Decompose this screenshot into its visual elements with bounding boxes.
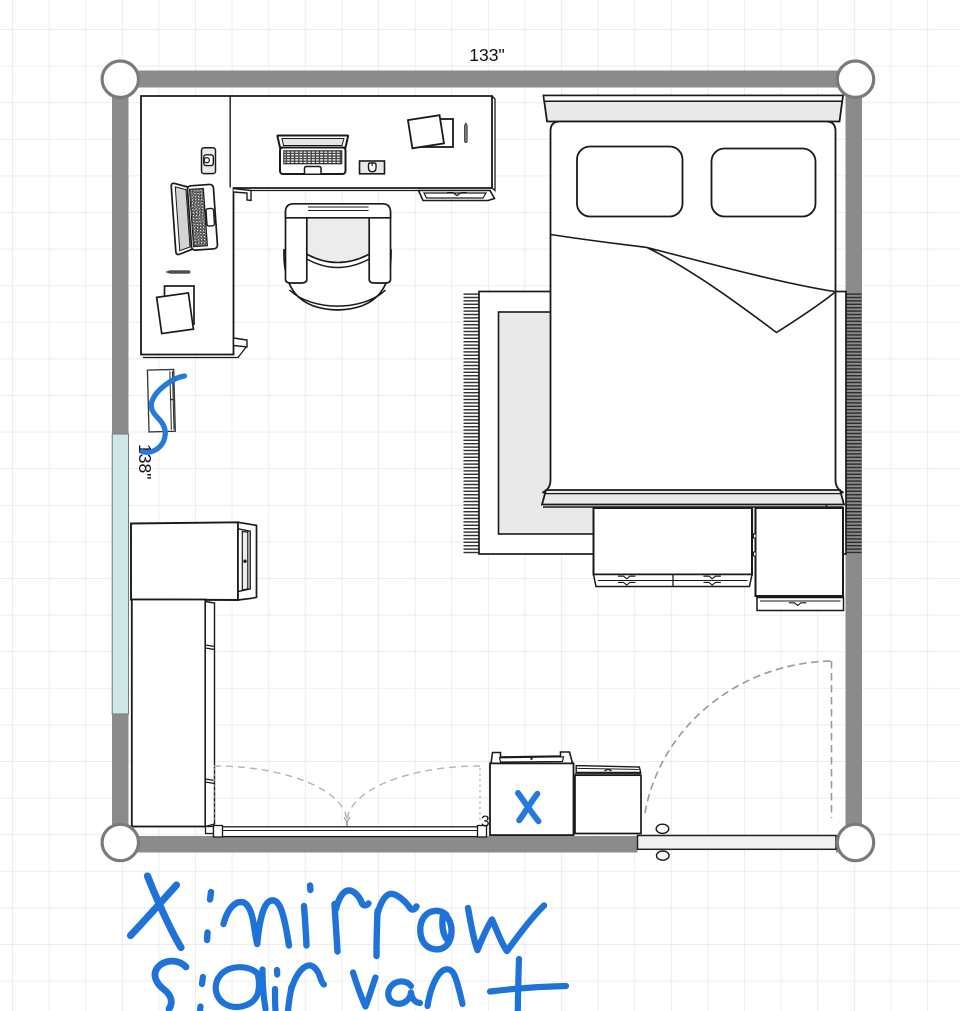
svg-text:3: 3 [481,814,490,831]
svg-text:133": 133" [469,45,504,65]
